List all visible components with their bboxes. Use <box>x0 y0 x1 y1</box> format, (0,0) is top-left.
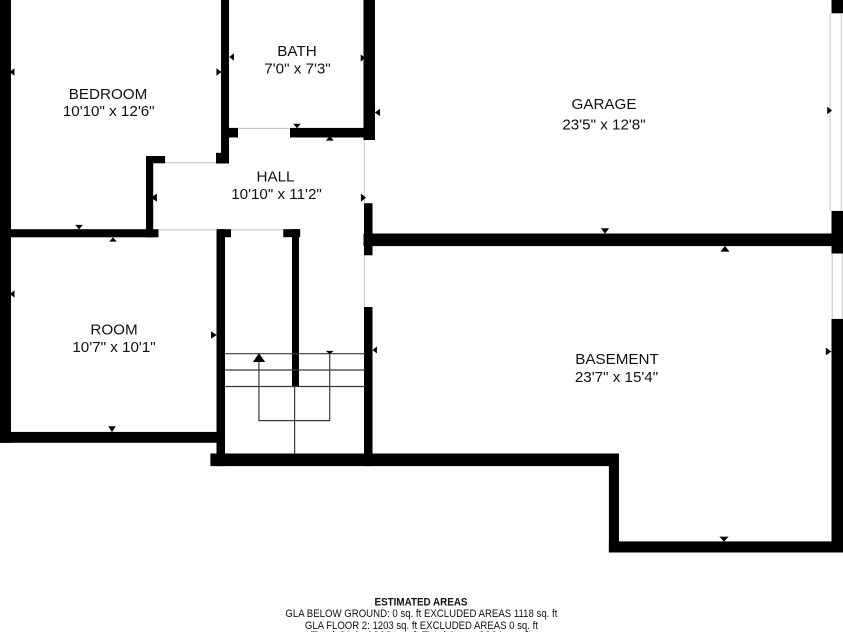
svg-text:ROOM: ROOM <box>90 321 137 338</box>
svg-text:ESTIMATED AREAS: ESTIMATED AREAS <box>375 597 468 609</box>
svg-text:10'10" x 11'2": 10'10" x 11'2" <box>231 186 322 203</box>
svg-text:HALL: HALL <box>257 169 295 186</box>
svg-text:23'7" x 15'4": 23'7" x 15'4" <box>575 369 658 386</box>
svg-text:7'0" x 7'3": 7'0" x 7'3" <box>264 60 330 77</box>
svg-text:10'10" x 12'6": 10'10" x 12'6" <box>63 103 155 120</box>
svg-text:BASEMENT: BASEMENT <box>575 351 659 368</box>
svg-text:BATH: BATH <box>277 43 316 60</box>
svg-text:GLA BELOW GROUND: 0 sq. ft EXC: GLA BELOW GROUND: 0 sq. ft EXCLUDED AREA… <box>285 608 558 620</box>
svg-text:BEDROOM: BEDROOM <box>69 86 147 103</box>
svg-text:10'7" x 10'1": 10'7" x 10'1" <box>72 339 155 356</box>
svg-text:GARAGE: GARAGE <box>572 96 637 113</box>
svg-text:23'5" x 12'8": 23'5" x 12'8" <box>562 117 645 134</box>
